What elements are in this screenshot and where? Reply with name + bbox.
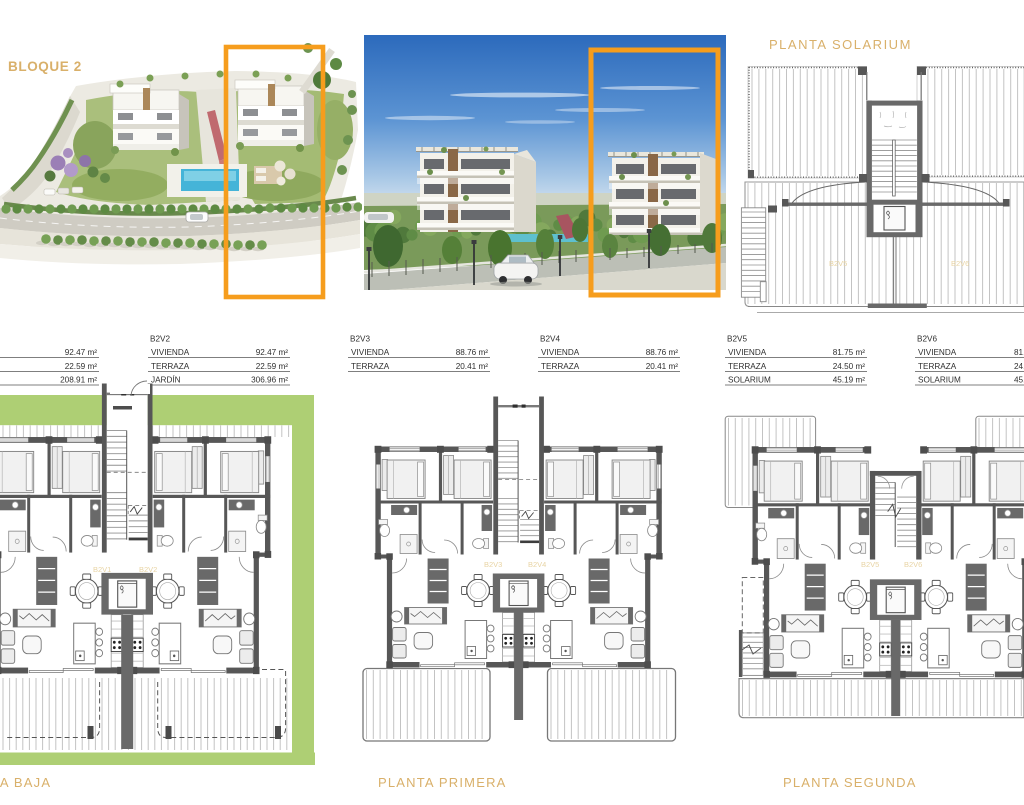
svg-text:92.47 m²: 92.47 m² bbox=[65, 348, 98, 357]
svg-text:B2V3: B2V3 bbox=[484, 560, 502, 569]
svg-text:22.59 m²: 22.59 m² bbox=[256, 362, 289, 371]
svg-text:B2V5: B2V5 bbox=[861, 560, 879, 569]
svg-text:B2V1: B2V1 bbox=[93, 565, 111, 574]
svg-text:SOLARIUM: SOLARIUM bbox=[918, 376, 961, 385]
svg-text:81.75 m²: 81.75 m² bbox=[833, 348, 866, 357]
svg-text:81.75 m²: 81.75 m² bbox=[1014, 348, 1024, 357]
svg-text:306.96 m²: 306.96 m² bbox=[251, 376, 288, 385]
svg-text:PLANTA SOLARIUM: PLANTA SOLARIUM bbox=[769, 37, 912, 52]
svg-text:VIVIENDA: VIVIENDA bbox=[151, 348, 190, 357]
svg-text:SOLARIUM: SOLARIUM bbox=[728, 376, 771, 385]
svg-text:TERRAZA: TERRAZA bbox=[728, 362, 767, 371]
svg-text:B2V4: B2V4 bbox=[540, 335, 560, 344]
svg-text:208.91 m²: 208.91 m² bbox=[60, 376, 97, 385]
svg-text:22.59 m²: 22.59 m² bbox=[65, 362, 98, 371]
svg-text:B2V6: B2V6 bbox=[951, 259, 969, 268]
svg-text:45.19 m²: 45.19 m² bbox=[833, 376, 866, 385]
svg-text:20.41 m²: 20.41 m² bbox=[456, 362, 489, 371]
svg-text:92.47 m²: 92.47 m² bbox=[256, 348, 289, 357]
svg-text:B2V6: B2V6 bbox=[917, 335, 937, 344]
svg-text:24.50 m²: 24.50 m² bbox=[833, 362, 866, 371]
svg-text:PLANTA BAJA: PLANTA BAJA bbox=[0, 775, 51, 790]
svg-text:45.19 m²: 45.19 m² bbox=[1014, 376, 1024, 385]
svg-text:B2V2: B2V2 bbox=[150, 335, 170, 344]
svg-text:B2V6: B2V6 bbox=[904, 560, 922, 569]
svg-text:88.76 m²: 88.76 m² bbox=[456, 348, 489, 357]
svg-text:24.50 m²: 24.50 m² bbox=[1014, 362, 1024, 371]
svg-text:JARDÍN: JARDÍN bbox=[151, 375, 181, 385]
svg-text:B2V5: B2V5 bbox=[727, 335, 747, 344]
svg-text:TERRAZA: TERRAZA bbox=[541, 362, 580, 371]
svg-text:VIVIENDA: VIVIENDA bbox=[918, 348, 957, 357]
svg-text:VIVIENDA: VIVIENDA bbox=[728, 348, 767, 357]
svg-text:B2V2: B2V2 bbox=[139, 565, 157, 574]
svg-text:20.41 m²: 20.41 m² bbox=[646, 362, 679, 371]
svg-text:BLOQUE 2: BLOQUE 2 bbox=[8, 59, 82, 74]
svg-text:PLANTA SEGUNDA: PLANTA SEGUNDA bbox=[783, 775, 917, 790]
svg-text:88.76 m²: 88.76 m² bbox=[646, 348, 679, 357]
svg-text:B2V3: B2V3 bbox=[350, 335, 370, 344]
svg-text:B2V5: B2V5 bbox=[829, 259, 847, 268]
svg-text:B2V4: B2V4 bbox=[528, 560, 546, 569]
svg-text:TERRAZA: TERRAZA bbox=[151, 362, 190, 371]
svg-text:TERRAZA: TERRAZA bbox=[351, 362, 390, 371]
svg-text:TERRAZA: TERRAZA bbox=[918, 362, 957, 371]
svg-text:VIVIENDA: VIVIENDA bbox=[351, 348, 390, 357]
svg-text:PLANTA PRIMERA: PLANTA PRIMERA bbox=[378, 775, 507, 790]
svg-text:VIVIENDA: VIVIENDA bbox=[541, 348, 580, 357]
